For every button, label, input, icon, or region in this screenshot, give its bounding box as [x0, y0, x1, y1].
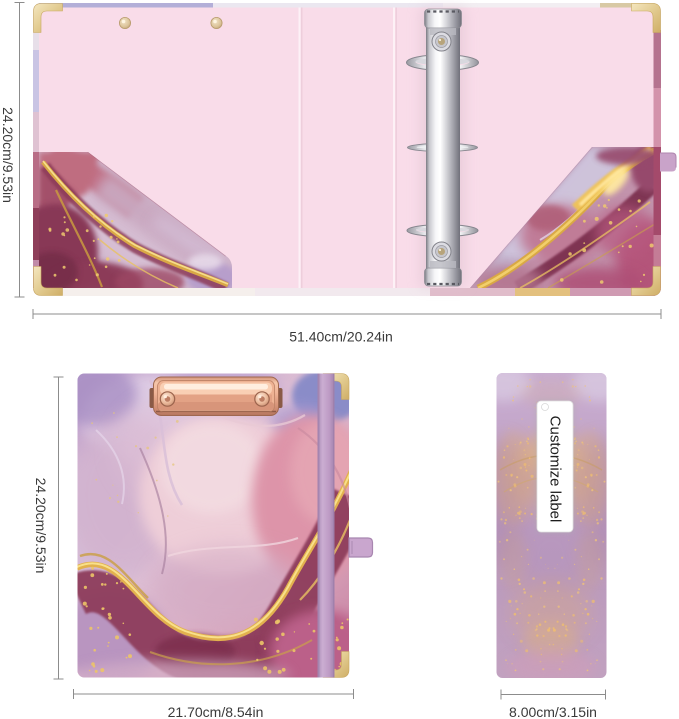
svg-text:8.00cm/3.15in: 8.00cm/3.15in: [509, 704, 597, 719]
svg-text:24.20cm/9.53in: 24.20cm/9.53in: [33, 478, 49, 574]
svg-text:Customize label: Customize label: [547, 416, 564, 523]
svg-text:21.70cm/8.54in: 21.70cm/8.54in: [168, 704, 264, 719]
svg-text:51.40cm/20.24in: 51.40cm/20.24in: [289, 329, 393, 345]
svg-text:24.20cm/9.53in: 24.20cm/9.53in: [0, 107, 16, 203]
